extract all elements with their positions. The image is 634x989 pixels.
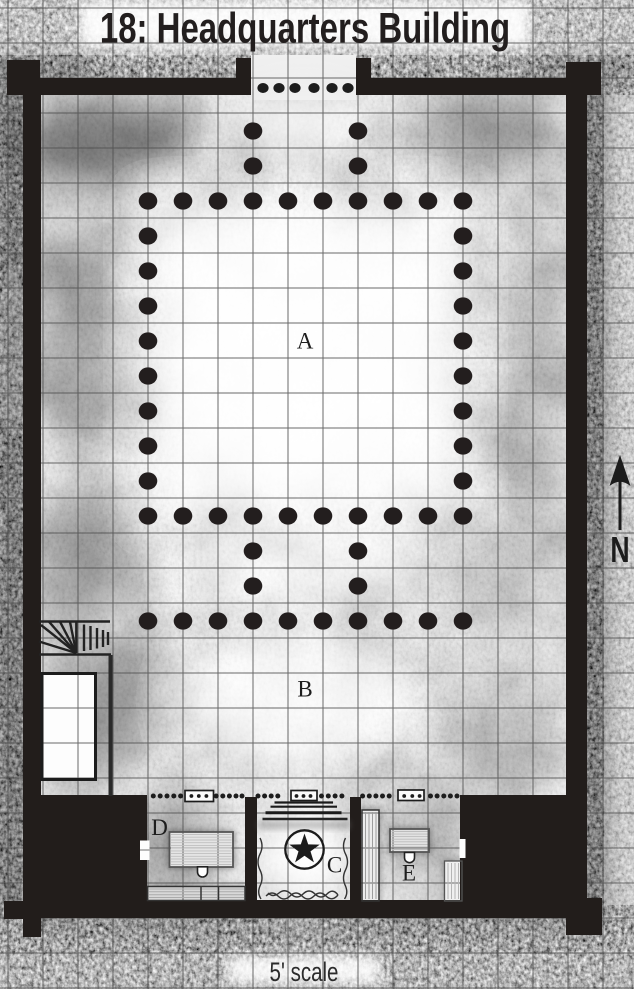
svg-text:A: A — [297, 329, 314, 354]
svg-text:N: N — [610, 529, 629, 570]
svg-text:D: D — [151, 815, 168, 840]
svg-text:B: B — [297, 677, 312, 702]
svg-text:C: C — [327, 853, 342, 878]
svg-text:18: Headquarters Building: 18: Headquarters Building — [100, 4, 510, 52]
svg-text:E: E — [402, 861, 416, 886]
svg-text:5' scale: 5' scale — [270, 957, 339, 987]
